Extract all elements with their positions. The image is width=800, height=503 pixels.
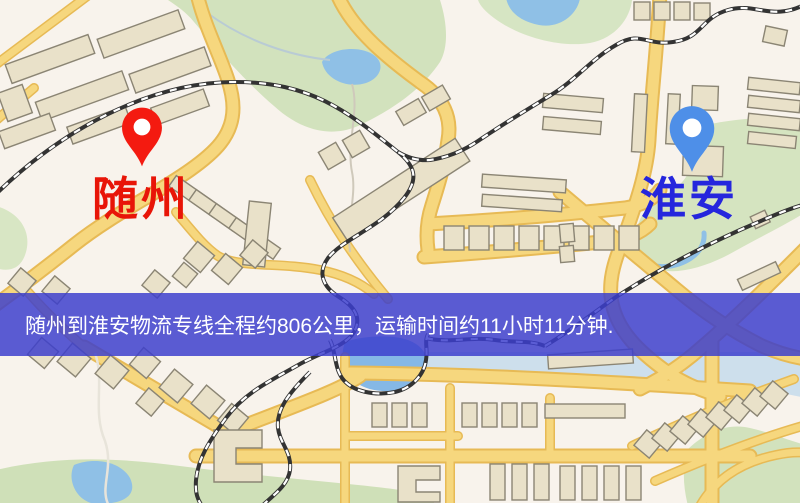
map-background	[0, 0, 800, 503]
origin-city-label: 随州	[92, 176, 190, 222]
destination-city-label: 淮安	[640, 176, 738, 222]
route-info-text: 随州到淮安物流专线全程约806公里，运输时间约11小时11分钟.	[0, 310, 613, 340]
map-screenshot: 随州 淮安 随州到淮安物流专线全程约806公里，运输时间约11小时11分钟.	[0, 0, 800, 503]
route-info-banner: 随州到淮安物流专线全程约806公里，运输时间约11小时11分钟.	[0, 293, 800, 356]
